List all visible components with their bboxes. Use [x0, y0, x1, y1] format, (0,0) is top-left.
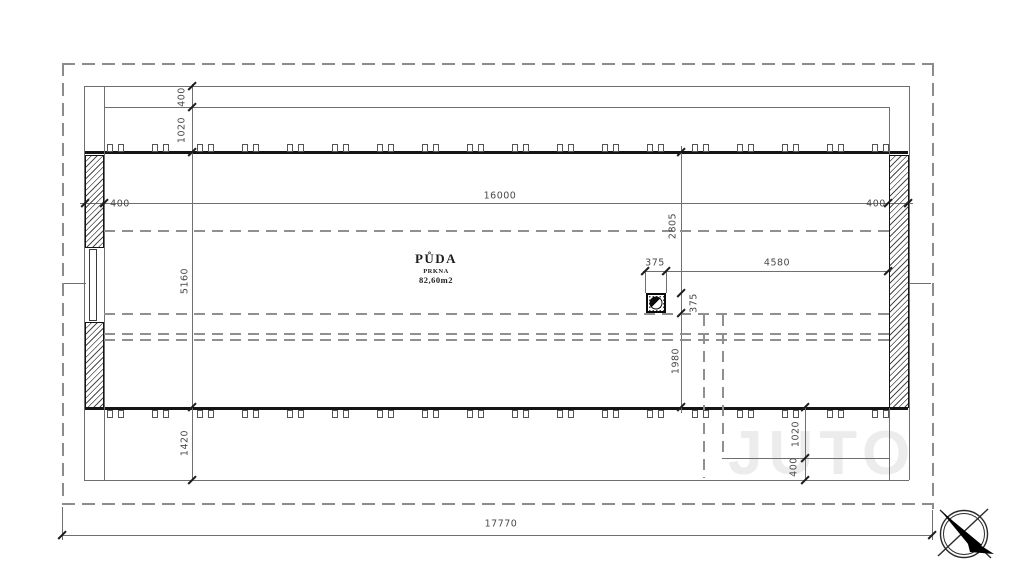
- rafter-mark: [343, 144, 349, 152]
- rafter-mark: [512, 144, 518, 152]
- eaves-line: [909, 86, 910, 480]
- rafter-mark: [658, 410, 664, 418]
- rafter-mark: [512, 410, 518, 418]
- rafter-mark: [298, 410, 304, 418]
- roof-slope-dashed-line: [104, 333, 889, 335]
- rafter-mark: [118, 410, 124, 418]
- rafter-mark: [253, 144, 259, 152]
- roof-slope-dashed-line: [104, 339, 889, 341]
- rafter-mark: [748, 144, 754, 152]
- dim-bottom-right-overhang: 1020: [791, 421, 802, 447]
- rafter-mark: [557, 410, 563, 418]
- rafter-mark: [748, 410, 754, 418]
- wall-face-line: [104, 86, 105, 480]
- roof-edge-line: [104, 107, 889, 108]
- rafter-mark: [737, 410, 743, 418]
- rafter-mark: [208, 144, 214, 152]
- rafter-mark: [107, 144, 113, 152]
- rafter-mark: [692, 144, 698, 152]
- rafter-mark: [197, 410, 203, 418]
- rafter-mark: [613, 144, 619, 152]
- dim-bottom-right-eave: 400: [789, 457, 800, 477]
- rafter-mark: [782, 410, 788, 418]
- rafter-mark: [703, 410, 709, 418]
- dim-overall-width: 17770: [485, 519, 518, 530]
- rafter-mark: [782, 144, 788, 152]
- rafter-mark: [197, 144, 203, 152]
- dim-chimney-height: 375: [689, 293, 700, 313]
- rafter-mark: [242, 144, 248, 152]
- rafter-mark: [647, 410, 653, 418]
- window-symbol: [89, 249, 97, 321]
- dim-chimney-width: 375: [645, 258, 665, 269]
- rafter-mark: [613, 410, 619, 418]
- extension-line: [666, 272, 667, 293]
- plot-boundary-dashed: [932, 63, 934, 509]
- gable-wall-left-upper: [85, 155, 104, 248]
- rafter-mark: [793, 144, 799, 152]
- rafter-mark: [737, 144, 743, 152]
- watermark: JUTO: [728, 418, 916, 489]
- plot-boundary-dashed: [62, 63, 932, 65]
- dim-left-interior: 5160: [180, 268, 191, 294]
- eaves-line: [84, 480, 909, 481]
- roof-slope-dashed-line: [104, 230, 889, 232]
- eaves-line: [84, 86, 85, 480]
- rafter-mark: [422, 144, 428, 152]
- dim-left-bottom: 1420: [180, 430, 191, 456]
- gable-wall-left-lower: [85, 322, 104, 408]
- rafter-mark: [703, 144, 709, 152]
- flue-projection-dashed: [703, 315, 705, 478]
- rafter-mark: [692, 410, 698, 418]
- room-label: PŮDA PRKNA 82,60m2: [415, 251, 457, 285]
- rafter-mark: [523, 410, 529, 418]
- dim-top-right-wall: 400: [866, 199, 886, 210]
- dimension-line: [805, 407, 806, 481]
- rafter-mark: [152, 410, 158, 418]
- rafter-mark: [827, 144, 833, 152]
- rafter-mark: [163, 144, 169, 152]
- dimension-line: [62, 535, 932, 536]
- eaves-line: [84, 86, 909, 87]
- rafter-mark: [602, 144, 608, 152]
- rafter-mark: [478, 410, 484, 418]
- chimney-flue-circle: [650, 297, 663, 310]
- rafter-mark: [163, 410, 169, 418]
- rafter-mark: [838, 410, 844, 418]
- dim-chimney-to-wall: 4580: [764, 258, 790, 269]
- rafter-mark: [872, 144, 878, 152]
- rafter-mark: [377, 144, 383, 152]
- dim-left-overhang: 1020: [177, 117, 188, 143]
- rafter-mark: [883, 410, 889, 418]
- rafter-mark: [568, 410, 574, 418]
- rafter-mark: [287, 144, 293, 152]
- dim-left-eave: 400: [177, 87, 188, 107]
- ridge-axis-stub: [63, 283, 86, 284]
- rafter-mark: [388, 144, 394, 152]
- room-name: PŮDA: [415, 251, 457, 267]
- rafter-mark: [523, 144, 529, 152]
- rafter-mark: [287, 410, 293, 418]
- rafter-mark: [467, 410, 473, 418]
- rafter-mark: [332, 410, 338, 418]
- rafter-mark: [793, 410, 799, 418]
- floor-plan-canvas: JUTO PŮDA PRKNA 82,60m2 16000 400 400 40…: [0, 0, 1024, 579]
- rafter-mark: [332, 144, 338, 152]
- room-material: PRKNA: [415, 268, 457, 275]
- rafter-mark: [343, 410, 349, 418]
- rafter-mark: [557, 144, 563, 152]
- rafter-mark: [568, 144, 574, 152]
- rafter-mark: [467, 144, 473, 152]
- rafter-mark: [658, 144, 664, 152]
- rafter-mark: [208, 410, 214, 418]
- rafter-mark: [152, 144, 158, 152]
- rafter-mark: [298, 144, 304, 152]
- compass-north-arrow-icon: [933, 503, 1003, 567]
- dim-top-left-wall: 400: [110, 199, 130, 210]
- rafter-mark: [388, 410, 394, 418]
- ridge-axis-stub: [908, 283, 931, 284]
- rafter-mark: [433, 144, 439, 152]
- rafter-mark: [827, 410, 833, 418]
- rafter-mark: [377, 410, 383, 418]
- dimension-line: [80, 203, 913, 204]
- rafter-mark: [107, 410, 113, 418]
- rafter-mark: [838, 144, 844, 152]
- plot-boundary-dashed: [62, 63, 64, 503]
- room-area: 82,60m2: [415, 275, 457, 285]
- rafter-mark: [883, 144, 889, 152]
- rafter-mark: [478, 144, 484, 152]
- rafter-mark: [253, 410, 259, 418]
- extension-line: [645, 272, 646, 293]
- plot-boundary-dashed: [62, 503, 932, 505]
- flue-projection-dashed: [722, 315, 724, 458]
- dim-chimney-bottom: 1980: [671, 348, 682, 374]
- rafter-mark: [118, 144, 124, 152]
- rafter-mark: [242, 410, 248, 418]
- rafter-mark: [647, 144, 653, 152]
- chimney-flue-icon: [646, 293, 666, 313]
- gable-wall-right: [889, 155, 909, 408]
- rafter-mark: [602, 410, 608, 418]
- dim-top-span: 16000: [484, 191, 517, 202]
- rafter-mark: [872, 410, 878, 418]
- dimension-line: [192, 84, 193, 481]
- rafter-mark: [422, 410, 428, 418]
- dim-chimney-top: 2805: [668, 213, 679, 239]
- rafter-mark: [433, 410, 439, 418]
- roof-slope-dashed-line: [104, 313, 889, 315]
